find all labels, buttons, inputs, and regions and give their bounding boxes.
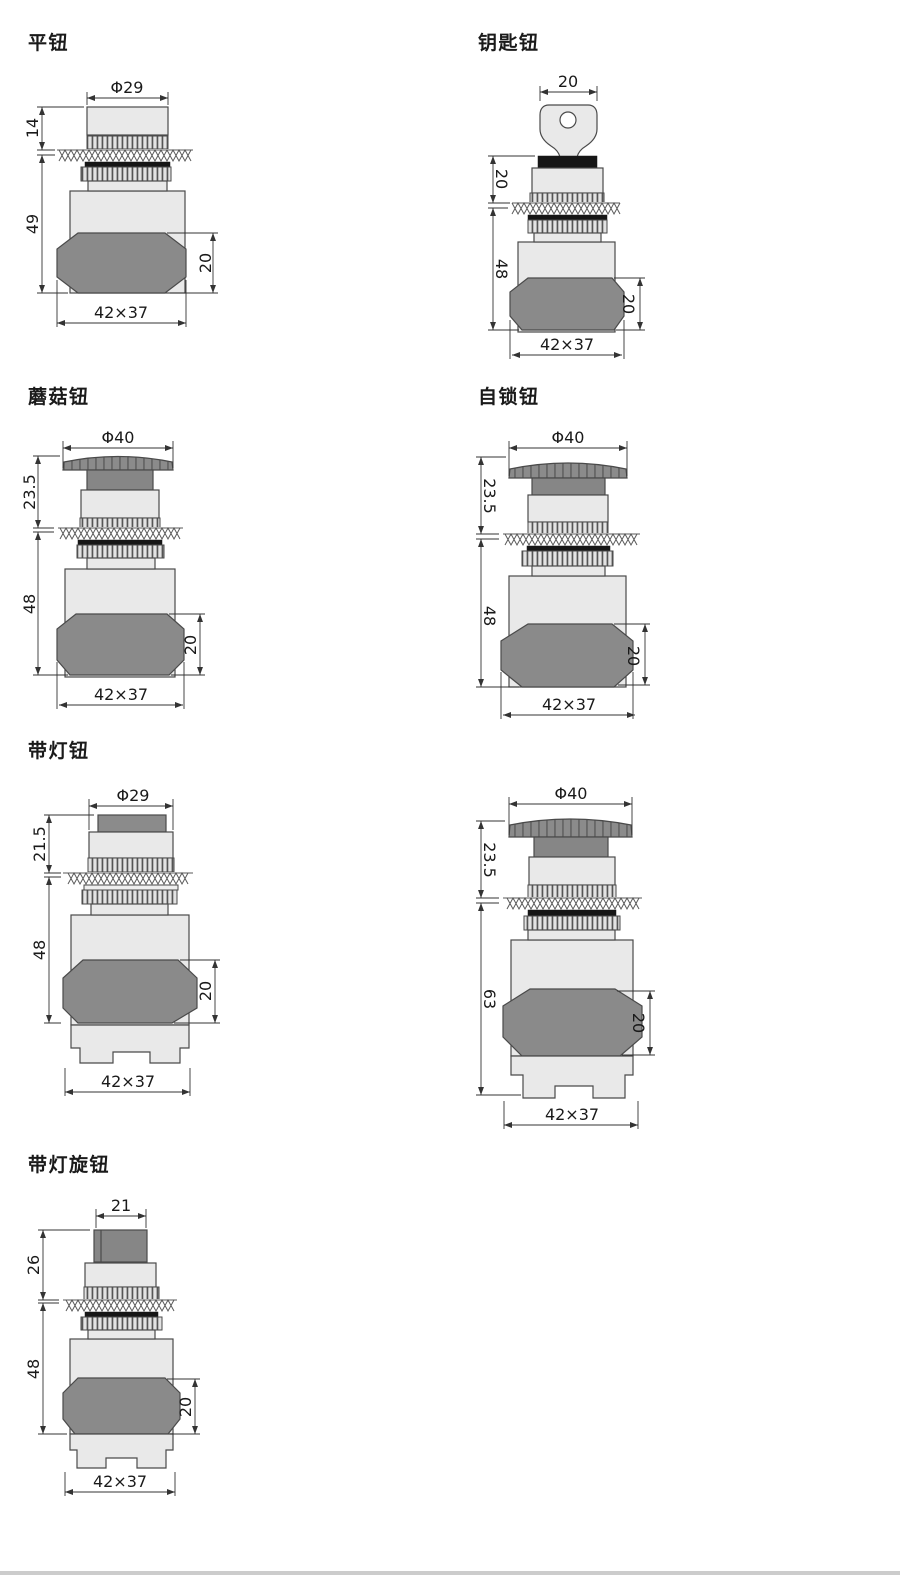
terminal-base bbox=[71, 1025, 189, 1063]
dim-left-label: 48 bbox=[492, 259, 511, 279]
seal-ring bbox=[85, 162, 170, 167]
lock-nut-knurl bbox=[81, 167, 171, 181]
hex-nut-octagon bbox=[57, 614, 184, 675]
bezel-collar bbox=[81, 490, 159, 518]
dim-bottom-label: 42×37 bbox=[540, 335, 594, 354]
figure-self-locking-button: Φ40 23.5 48 20 42×37 bbox=[455, 420, 700, 725]
dim-upper-left-label: 23.5 bbox=[480, 478, 499, 514]
figure-title-self-locking-button: 自锁钮 bbox=[478, 382, 540, 409]
dim-bottom-label: 42×37 bbox=[94, 303, 148, 322]
illuminated-mushroom-button-diagram: Φ40 23.5 63 20 42×37 bbox=[455, 775, 705, 1140]
lock-nut-knurl bbox=[81, 1317, 162, 1330]
cap-knurl-ring bbox=[88, 858, 174, 872]
head-neck bbox=[534, 837, 608, 857]
dim-left-label: 49 bbox=[23, 214, 42, 234]
figure-mushroom-button: Φ40 23.5 48 20 42×37 bbox=[20, 420, 250, 720]
dim-right-label: 20 bbox=[624, 646, 643, 666]
dim-top-label: 21 bbox=[111, 1196, 131, 1215]
self-locking-button-diagram: Φ40 23.5 48 20 42×37 bbox=[455, 420, 700, 725]
body-step bbox=[532, 566, 605, 576]
head-neck bbox=[87, 470, 153, 490]
hex-nut-octagon bbox=[503, 989, 642, 1056]
dim-right-label: 20 bbox=[629, 1013, 648, 1033]
cap-knurl-ring bbox=[80, 518, 160, 528]
figure-key-button: 20 20 48 20 42×37 bbox=[455, 65, 700, 370]
head-neck bbox=[532, 478, 605, 495]
bezel-collar bbox=[528, 495, 608, 522]
flat-button-diagram: Φ29 14 49 20 42×37 bbox=[20, 70, 250, 340]
panel-cut-zigzag bbox=[55, 149, 195, 163]
button-cap bbox=[89, 832, 173, 858]
panel-cut-zigzag bbox=[56, 527, 185, 541]
panel-cut-zigzag bbox=[510, 202, 622, 216]
figure-title-mushroom-button: 蘑菇钮 bbox=[28, 382, 90, 409]
panel-cut-zigzag bbox=[501, 897, 644, 911]
hex-nut-octagon bbox=[57, 233, 186, 293]
seal-ring bbox=[528, 215, 607, 220]
illuminated-rotary-knob-diagram: 21 26 48 20 42×37 bbox=[20, 1190, 250, 1510]
bezel-collar bbox=[529, 857, 615, 885]
figure-title-flat-button: 平钮 bbox=[28, 28, 69, 55]
dim-top-label: 20 bbox=[558, 72, 578, 91]
body-step bbox=[528, 930, 615, 940]
key-button-diagram: 20 20 48 20 42×37 bbox=[455, 65, 700, 370]
dim-bottom-label: 42×37 bbox=[542, 695, 596, 714]
figure-title-illuminated-button: 带灯钮 bbox=[28, 736, 90, 763]
page-bottom-bar bbox=[0, 1571, 900, 1575]
terminal-base bbox=[70, 1434, 173, 1468]
cap-knurl-ring bbox=[528, 885, 616, 898]
body-step bbox=[91, 904, 168, 915]
dim-left-label: 48 bbox=[480, 606, 499, 626]
dim-right-label: 20 bbox=[196, 981, 215, 1001]
terminal-base bbox=[511, 1056, 633, 1098]
button-cap bbox=[87, 107, 168, 135]
hex-nut-octagon bbox=[501, 624, 633, 687]
bezel-collar bbox=[85, 1263, 156, 1287]
cap-knurl-ring bbox=[530, 193, 604, 203]
dim-upper-left-label: 20 bbox=[492, 169, 511, 189]
mushroom-head bbox=[509, 463, 627, 478]
dim-right-label: 20 bbox=[619, 294, 638, 314]
hex-nut-octagon bbox=[63, 1378, 180, 1434]
dim-right-label: 20 bbox=[176, 1397, 195, 1417]
cap-knurl-ring bbox=[84, 1287, 159, 1300]
dim-upper-left-label: 21.5 bbox=[30, 826, 49, 862]
body-step bbox=[534, 233, 601, 242]
lock-nut-knurl bbox=[524, 916, 620, 930]
lens-cap bbox=[98, 815, 166, 832]
body-step bbox=[88, 1330, 155, 1339]
dim-upper-left-label: 23.5 bbox=[480, 842, 499, 878]
mushroom-button-diagram: Φ40 23.5 48 20 42×37 bbox=[20, 420, 250, 720]
panel-cut-zigzag bbox=[501, 533, 642, 547]
dim-upper-left-label: 23.5 bbox=[20, 474, 39, 510]
dim-top-diameter-label: Φ29 bbox=[111, 78, 144, 97]
figure-title-key-button: 钥匙钮 bbox=[478, 28, 540, 55]
dim-bottom-label: 42×37 bbox=[94, 685, 148, 704]
lock-collar bbox=[538, 156, 597, 168]
dim-top-diameter-label: Φ40 bbox=[555, 784, 588, 803]
seal-ring bbox=[85, 1312, 158, 1317]
mushroom-head bbox=[509, 819, 632, 837]
figure-flat-button: Φ29 14 49 20 42×37 bbox=[20, 70, 250, 340]
dim-left-label: 63 bbox=[480, 989, 499, 1009]
dim-top-diameter-label: Φ40 bbox=[102, 428, 135, 447]
mushroom-head bbox=[63, 457, 173, 471]
knob-handle bbox=[94, 1230, 147, 1262]
dim-bottom-label: 42×37 bbox=[545, 1105, 599, 1124]
cap-knurl-ring bbox=[87, 136, 168, 149]
cap-knurl-ring bbox=[528, 522, 608, 534]
hex-nut-octagon bbox=[63, 960, 197, 1023]
lock-nut-knurl bbox=[522, 551, 613, 566]
lock-nut-knurl bbox=[82, 890, 177, 904]
washer-band bbox=[84, 885, 178, 890]
hex-nut-octagon bbox=[510, 278, 624, 330]
lock-cylinder-collar bbox=[532, 168, 603, 193]
panel-cut-zigzag bbox=[61, 1299, 179, 1313]
dim-left-label: 48 bbox=[24, 1359, 43, 1379]
dim-right-label: 20 bbox=[196, 253, 215, 273]
key-hole bbox=[560, 112, 576, 128]
body-step bbox=[87, 558, 155, 569]
seal-ring bbox=[78, 540, 162, 545]
body-step bbox=[88, 181, 167, 191]
dim-upper-left-label: 26 bbox=[24, 1255, 43, 1275]
seal-ring bbox=[528, 910, 616, 916]
dim-left-label: 48 bbox=[20, 594, 39, 614]
dim-right-label: 20 bbox=[181, 635, 200, 655]
figure-illuminated-rotary-knob: 21 26 48 20 42×37 bbox=[20, 1190, 250, 1510]
lock-nut-knurl bbox=[528, 220, 607, 233]
dim-top-diameter-label: Φ40 bbox=[552, 428, 585, 447]
illuminated-button-diagram: Φ29 21.5 48 20 42×37 bbox=[20, 770, 255, 1105]
lock-nut-knurl bbox=[77, 545, 164, 558]
dim-bottom-label: 42×37 bbox=[101, 1072, 155, 1091]
seal-ring bbox=[527, 546, 610, 551]
dim-top-diameter-label: Φ29 bbox=[117, 786, 150, 805]
dim-upper-left-label: 14 bbox=[23, 118, 42, 138]
dim-left-label: 48 bbox=[30, 940, 49, 960]
dim-bottom-label: 42×37 bbox=[93, 1472, 147, 1491]
figure-illuminated-button: Φ29 21.5 48 20 42×37 bbox=[20, 770, 255, 1105]
figure-title-illuminated-rotary-knob: 带灯旋钮 bbox=[28, 1150, 110, 1177]
panel-cut-zigzag bbox=[61, 872, 195, 886]
figure-illuminated-mushroom-button: Φ40 23.5 63 20 42×37 bbox=[455, 775, 705, 1140]
